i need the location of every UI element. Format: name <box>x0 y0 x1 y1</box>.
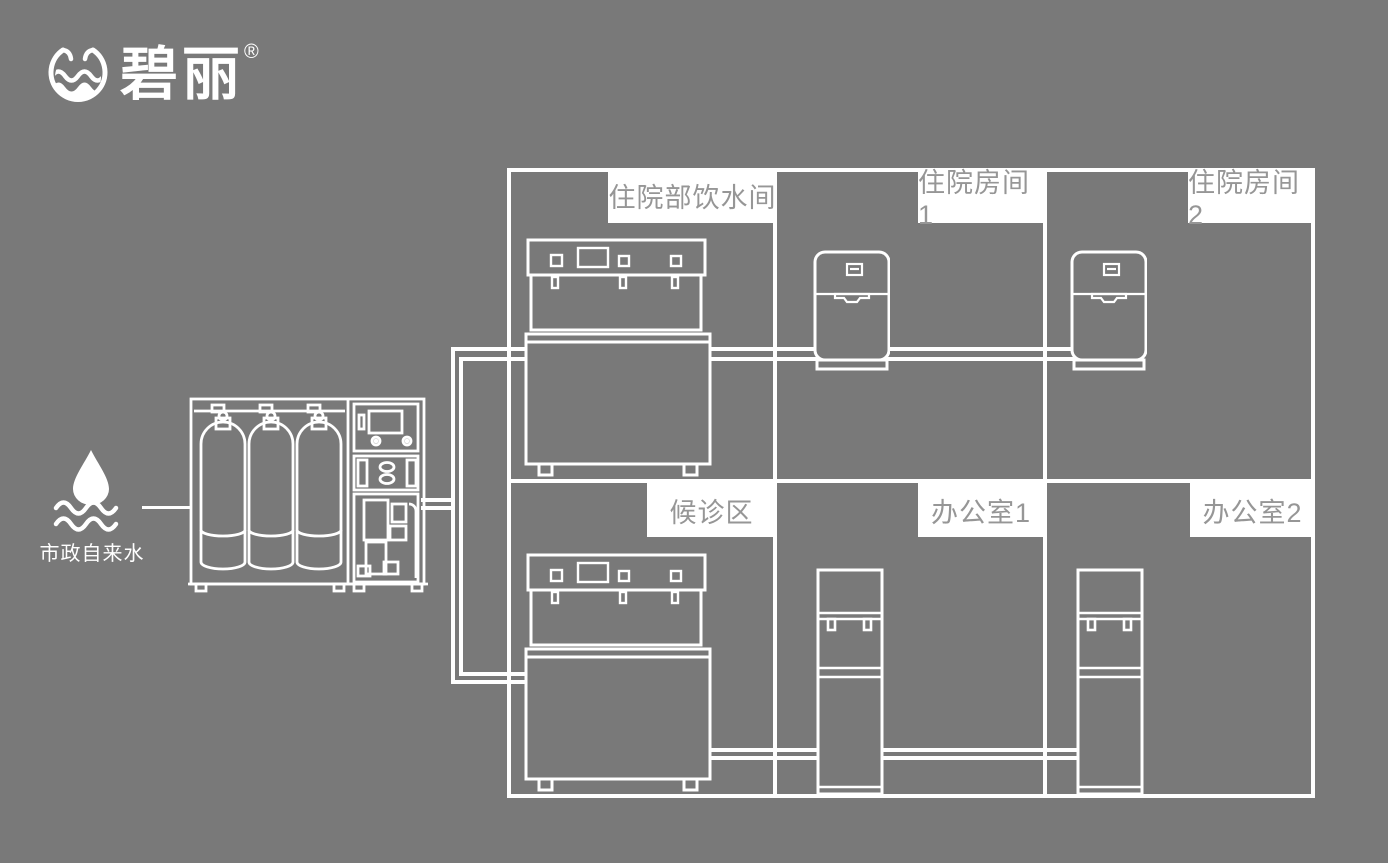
lower-pipe-b2 <box>708 756 821 760</box>
installation-diagram: 碧丽 ® 市政自来水 <box>0 0 1388 863</box>
floor-dispenser-office-2 <box>1072 566 1148 800</box>
riser-pipe-inner <box>459 357 463 676</box>
room-label-office-1: 办公室1 <box>918 483 1044 537</box>
registered-trademark: ® <box>244 42 259 62</box>
source-feed-line <box>142 506 192 509</box>
lower-pipe-a2 <box>451 680 530 684</box>
lower-pipe-c1 <box>880 748 1080 752</box>
large-dispenser-waiting-area <box>524 552 714 792</box>
large-dispenser-inpatient-water-room <box>524 237 714 477</box>
water-purification-machine <box>188 392 436 594</box>
room-label-office-2: 办公室2 <box>1190 483 1315 537</box>
pump-section <box>354 494 418 582</box>
room-label-text: 办公室2 <box>1202 491 1302 530</box>
room-label-inpatient-room-2: 住院房间2 <box>1188 168 1315 223</box>
brand-name: 碧丽 <box>120 40 244 110</box>
bili-water-cup-logo-icon <box>44 40 112 110</box>
upper-pipe-c1 <box>885 347 1076 351</box>
upper-pipe-b2 <box>708 357 818 361</box>
room-label-text: 住院房间1 <box>918 161 1044 231</box>
control-panel <box>354 404 418 451</box>
small-dispenser-inpatient-room-1 <box>810 249 890 373</box>
room-label-text: 办公室1 <box>931 491 1031 530</box>
room-label-waiting-area: 候诊区 <box>647 483 776 537</box>
filter-tanks <box>201 412 341 569</box>
upper-pipe-b1 <box>708 347 818 351</box>
brand-logo: 碧丽 ® <box>44 40 259 110</box>
riser-pipe-outer <box>451 347 455 684</box>
room-label-text: 候诊区 <box>670 491 754 530</box>
lower-pipe-b1 <box>708 748 821 752</box>
filter-box <box>354 456 418 490</box>
room-label-inpatient-water-room: 住院部饮水间 <box>608 168 777 223</box>
lower-pipe-a1 <box>459 672 530 676</box>
room-label-text: 住院房间2 <box>1188 161 1315 231</box>
room-label-text: 住院部饮水间 <box>609 176 777 215</box>
upper-pipe-a1 <box>451 347 530 351</box>
lower-pipe-c2 <box>880 756 1080 760</box>
floor-dispenser-office-1 <box>812 566 888 800</box>
upper-pipe-a2 <box>459 357 530 361</box>
water-source-label: 市政自来水 <box>36 537 148 566</box>
water-drop-with-waves-icon <box>50 446 134 538</box>
upper-pipe-c2 <box>885 357 1076 361</box>
small-dispenser-inpatient-room-2 <box>1067 249 1147 373</box>
room-label-inpatient-room-1: 住院房间1 <box>918 168 1044 223</box>
